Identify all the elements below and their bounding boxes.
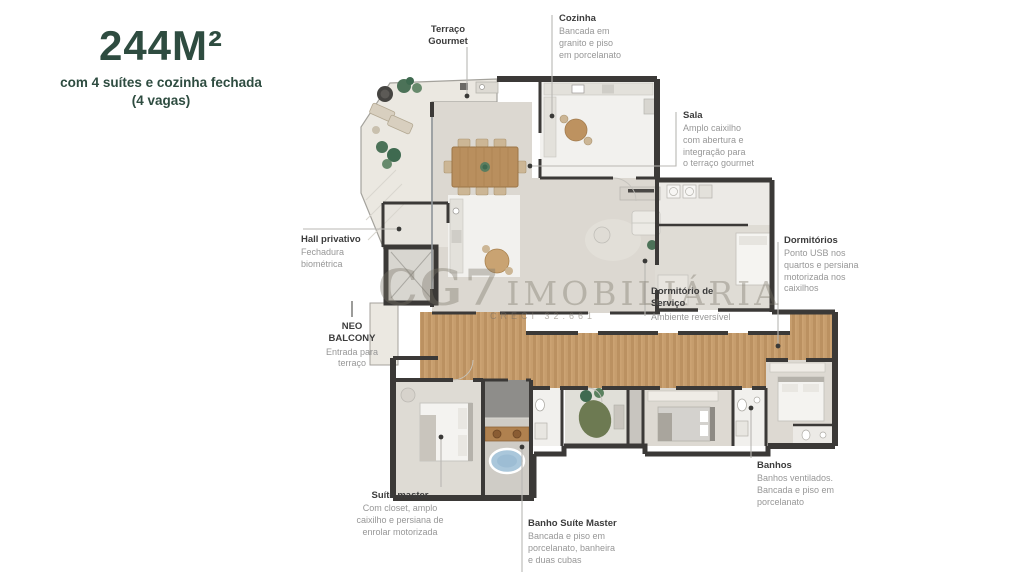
- sink-icon: [572, 85, 584, 93]
- label-neo-balcony: NEO BALCONY Entrada para terraço: [310, 321, 394, 370]
- chair: [476, 187, 488, 195]
- chair: [458, 187, 470, 195]
- side-table: [372, 126, 380, 134]
- area-title: 244M²: [42, 24, 280, 68]
- label-hall-privativo: Hall privativo Fechadura biométrica: [301, 234, 396, 271]
- armchair: [401, 388, 415, 402]
- sink-icon: [820, 432, 826, 438]
- label-dormitorios-heading: Dormitórios: [784, 235, 892, 247]
- label-dormitorios-body: Ponto USB nos quartos e persiana motoriz…: [784, 248, 892, 295]
- tv-console: [620, 187, 660, 200]
- label-suite-master-heading: Suíte master: [330, 490, 470, 502]
- armchair: [594, 227, 610, 243]
- toilet-icon: [802, 430, 810, 440]
- sink-icon: [754, 397, 760, 403]
- sink-cuba-icon: [493, 430, 501, 438]
- label-banhos-body: Banhos ventilados. Bancada e piso em por…: [757, 473, 865, 508]
- floorplan-page: 244M² com 4 suítes e cozinha fechada (4 …: [0, 0, 1024, 577]
- label-dormitorio-servico: Dormitório de Serviço Ambiente reversíve…: [651, 286, 766, 323]
- kitchen-counter: [544, 83, 653, 95]
- washer-icon: [667, 185, 680, 198]
- chair: [476, 139, 488, 147]
- bed-pillow: [803, 384, 819, 392]
- bed-pillow: [782, 384, 798, 392]
- bed-throw: [658, 413, 672, 441]
- laundry-counter: [699, 185, 712, 198]
- bed-headboard: [468, 403, 473, 461]
- breakfast-table: [565, 119, 587, 141]
- chair: [518, 161, 526, 173]
- chair: [584, 137, 592, 145]
- label-terraco-gourmet-heading: Terraço Gourmet: [412, 24, 484, 49]
- label-sala-body: Amplo caixilho com abertura e integração…: [683, 123, 783, 170]
- shower-box: [483, 380, 531, 418]
- wardrobe: [648, 391, 718, 401]
- bed-pillow: [458, 408, 467, 429]
- label-cozinha-body: Bancada em granito e piso em porcelanato: [559, 26, 651, 61]
- shower-icon: [736, 421, 748, 436]
- tv-icon: [628, 189, 654, 193]
- title-block: 244M² com 4 suítes e cozinha fechada (4 …: [42, 24, 280, 111]
- plant-icon: [412, 83, 422, 93]
- bath3-floor: [733, 388, 766, 446]
- label-dorm-servico-heading: Dormitório de Serviço: [651, 286, 766, 311]
- bed-headboard: [778, 377, 824, 382]
- kitchen-counter: [544, 97, 556, 157]
- plant-icon: [382, 159, 392, 169]
- label-banho-suite-heading: Banho Suíte Master: [528, 518, 653, 530]
- label-dorm-servico-body: Ambiente reversível: [651, 312, 766, 324]
- watermark: CG7 IMOBILIÁRIA CRECI 32.661: [378, 258, 648, 321]
- fridge-icon: [644, 99, 655, 114]
- label-neo-body: Entrada para terraço: [310, 347, 394, 370]
- cooktop-icon: [452, 230, 462, 243]
- label-cozinha: Cozinha Bancada em granito e piso em por…: [559, 13, 651, 61]
- label-dormitorios: Dormitórios Ponto USB nos quartos e pers…: [784, 235, 892, 295]
- chair: [494, 139, 506, 147]
- label-banho-suite-master: Banho Suíte Master Bancada e piso em por…: [528, 518, 653, 566]
- bathtub-water: [497, 455, 517, 468]
- bed-throw: [420, 415, 436, 461]
- shaft: [628, 388, 643, 446]
- bed-headboard: [710, 407, 715, 441]
- label-terraco-gourmet: Terraço Gourmet: [412, 24, 484, 49]
- label-hall-body: Fechadura biométrica: [301, 247, 396, 270]
- washer-icon: [683, 185, 696, 198]
- grill-top-icon: [381, 90, 390, 99]
- label-cozinha-heading: Cozinha: [559, 13, 651, 25]
- label-neo-heading: NEO BALCONY: [310, 321, 394, 346]
- area-subtitle: com 4 suítes e cozinha fechada (4 vagas): [42, 74, 280, 110]
- chair: [494, 187, 506, 195]
- chair: [560, 115, 568, 123]
- sink-icon: [480, 85, 485, 90]
- sink-cuba-icon: [513, 430, 521, 438]
- label-suite-master-body: Com closet, amplo caixilho e persiana de…: [330, 503, 470, 538]
- toilet-icon: [738, 399, 747, 411]
- label-sala-heading: Sala: [683, 110, 783, 122]
- chair: [482, 245, 490, 253]
- wardrobe: [770, 363, 825, 372]
- label-banho-suite-body: Bancada e piso em porcelanato, banheira …: [528, 531, 653, 566]
- bed-pillow: [700, 411, 708, 422]
- desk: [614, 405, 624, 429]
- label-banhos: Banhos Banhos ventilados. Bancada e piso…: [757, 460, 865, 508]
- chair: [458, 139, 470, 147]
- service-bed-pillow: [739, 236, 767, 245]
- toilet-icon: [536, 399, 545, 411]
- centerpiece-plant-icon: [483, 165, 488, 170]
- label-suite-master: Suíte master Com closet, amplo caixilho …: [330, 490, 470, 538]
- plant-icon: [376, 141, 388, 153]
- label-sala: Sala Amplo caixilho com abertura e integ…: [683, 110, 783, 170]
- plant-icon: [580, 390, 592, 402]
- stove-icon: [602, 85, 614, 94]
- bed-pillow: [458, 435, 467, 456]
- bed-pillow: [700, 425, 708, 436]
- plant-icon: [406, 77, 414, 85]
- closet-corridor-wood: [420, 312, 526, 380]
- bed: [778, 377, 824, 421]
- label-hall-heading: Hall privativo: [301, 234, 396, 246]
- label-banhos-heading: Banhos: [757, 460, 865, 472]
- shower-icon: [535, 423, 547, 439]
- watermark-brand: CG7: [378, 258, 501, 317]
- chair: [444, 161, 452, 173]
- sink-icon: [453, 208, 459, 214]
- vanity-counter: [485, 427, 529, 441]
